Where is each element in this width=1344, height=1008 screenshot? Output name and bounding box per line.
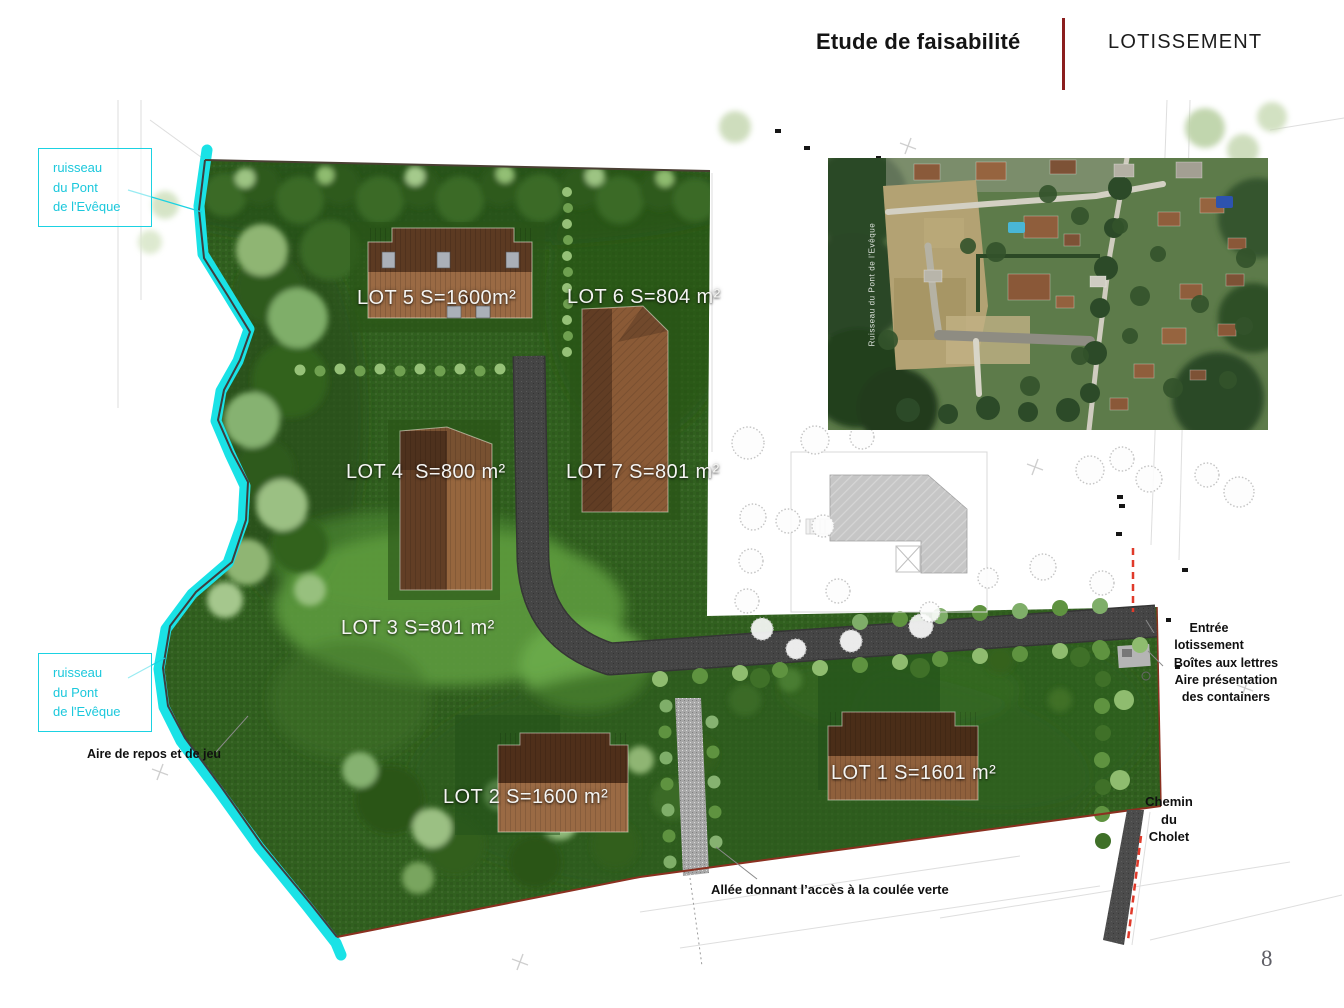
- page-number: 8: [1261, 946, 1273, 972]
- header-subtitle: LOTISSEMENT: [1108, 31, 1262, 54]
- page-title: Etude de faisabilité: [816, 29, 1021, 55]
- lot5-label: LOT 5 S=1600m²: [357, 287, 516, 310]
- mailboxes-containers-label: Boîtes aux lettres Aire présentation des…: [1165, 655, 1287, 706]
- site-plan-drawing: [0, 0, 1344, 1008]
- lot3-label: LOT 3 S=801 m²: [341, 617, 495, 640]
- lot1-house: [828, 712, 978, 800]
- aerial-stream-caption: Ruisseau du Pont de l'Evêque: [868, 185, 877, 385]
- lot1-label: LOT 1 S=1601 m²: [831, 762, 996, 785]
- lot4-house: [400, 427, 492, 590]
- lot4-label: LOT 4 S=800 m²: [346, 461, 506, 484]
- lot2-label: LOT 2 S=1600 m²: [443, 786, 608, 809]
- slide-page: { "header": { "title": "Etude de faisabi…: [0, 0, 1344, 1008]
- stream-callout-top: ruisseau du Pont de l'Evêque: [38, 148, 152, 227]
- lot2-house: [498, 733, 628, 832]
- lot7-label: LOT 7 S=801 m²: [566, 461, 720, 484]
- greenway-access-label: Allée donnant l’accès à la coulée verte: [711, 881, 949, 899]
- stream-callout-bottom: ruisseau du Pont de l'Evêque: [38, 653, 152, 732]
- chemin-du-cholet-label: Chemin du Cholet: [1128, 793, 1210, 846]
- subdivision-entrance-label: Entrée lotissement: [1158, 620, 1260, 654]
- header-divider: [1062, 18, 1065, 90]
- lot6-label: LOT 6 S=804 m²: [567, 286, 721, 309]
- play-area-label: Aire de repos et de jeu: [87, 746, 221, 763]
